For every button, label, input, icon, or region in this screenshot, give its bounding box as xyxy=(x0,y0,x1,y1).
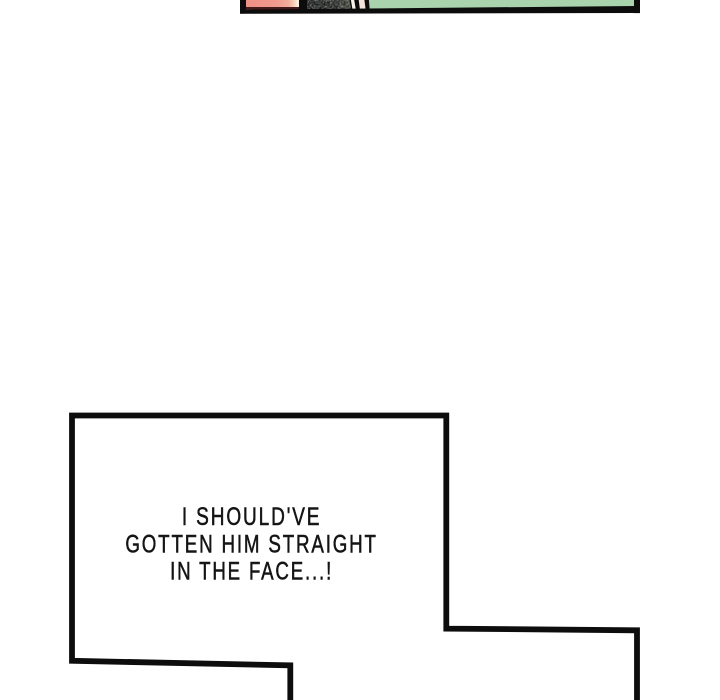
svg-text:GOTTEN HIM STRAIGHT: GOTTEN HIM STRAIGHT xyxy=(125,530,378,558)
svg-text:IN THE FACE...!: IN THE FACE...! xyxy=(170,558,333,586)
svg-text:I SHOULD'VE: I SHOULD'VE xyxy=(182,503,322,531)
